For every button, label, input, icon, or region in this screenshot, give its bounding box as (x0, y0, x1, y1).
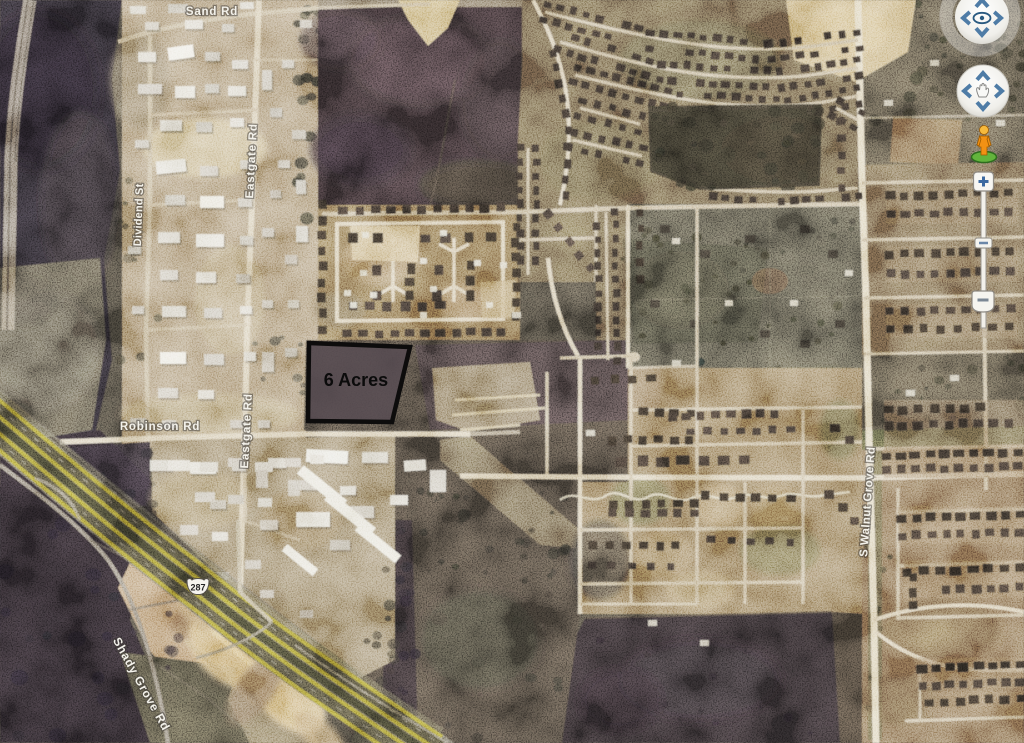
svg-text:6 Acres: 6 Acres (324, 370, 388, 390)
svg-text:Sand Rd: Sand Rd (186, 6, 238, 18)
svg-text:Robinson Rd: Robinson Rd (120, 421, 200, 433)
svg-text:287: 287 (190, 583, 205, 593)
svg-text:Dividend St: Dividend St (132, 183, 146, 246)
